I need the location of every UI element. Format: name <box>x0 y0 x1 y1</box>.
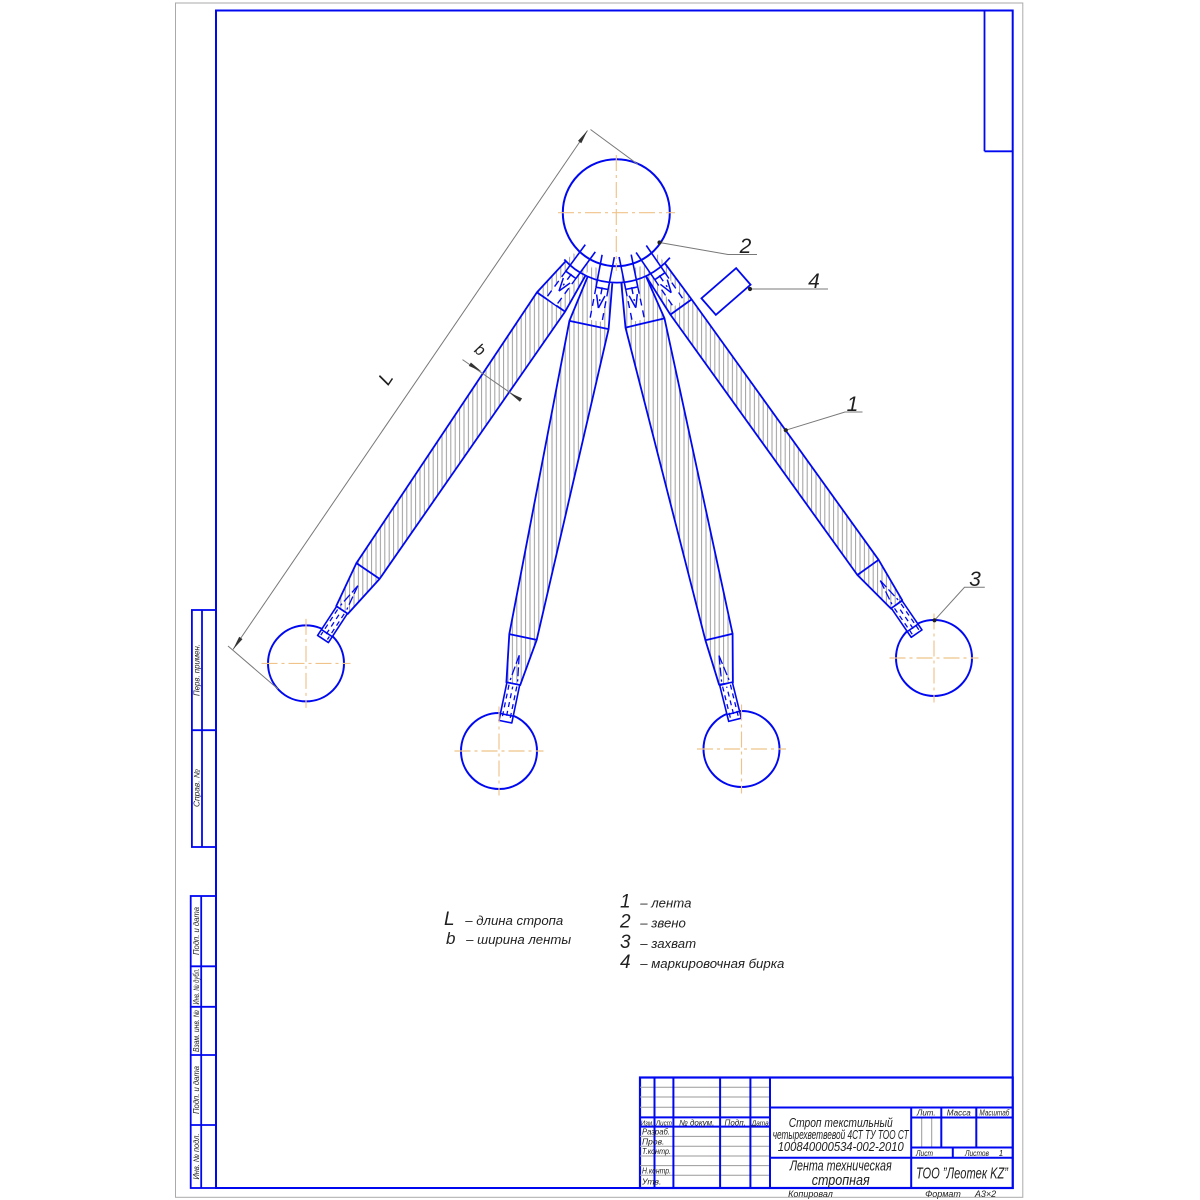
svg-text:Подп.: Подп. <box>725 1118 746 1127</box>
svg-text:стропная: стропная <box>812 1172 870 1189</box>
svg-text:4: 4 <box>808 270 820 293</box>
svg-text:Справ. №: Справ. № <box>193 769 202 807</box>
svg-text:Копировал: Копировал <box>788 1189 833 1199</box>
svg-text:L – длина стропа: L – длина стропа <box>444 909 563 930</box>
svg-text:Подп. и дата: Подп. и дата <box>192 906 201 955</box>
svg-text:Масштаб: Масштаб <box>979 1108 1009 1117</box>
svg-text:1: 1 <box>999 1149 1003 1158</box>
svg-text:Т.контр.: Т.контр. <box>642 1146 671 1156</box>
svg-text:2 – звено: 2 – звено <box>619 912 686 933</box>
svg-text:A3×2: A3×2 <box>974 1189 996 1199</box>
svg-text:№ докум.: № докум. <box>679 1118 714 1127</box>
svg-text:Пров.: Пров. <box>642 1136 664 1146</box>
svg-text:Инв. № дубл.: Инв. № дубл. <box>192 969 201 1005</box>
svg-text:Формат: Формат <box>925 1189 961 1199</box>
svg-text:Подп. и дата: Подп. и дата <box>192 1065 201 1114</box>
svg-text:2: 2 <box>739 235 752 258</box>
svg-text:Утв.: Утв. <box>641 1177 661 1187</box>
svg-text:b – ширина ленты: b – ширина ленты <box>446 929 571 948</box>
svg-text:4 – маркировочная бирка: 4 – маркировочная бирка <box>620 952 784 973</box>
svg-text:Взам. инв. №: Взам. инв. № <box>192 1010 201 1052</box>
svg-text:1: 1 <box>847 393 859 416</box>
svg-text:Масса: Масса <box>947 1108 972 1117</box>
svg-text:Перв. примен.: Перв. примен. <box>193 644 202 696</box>
svg-text:3: 3 <box>969 568 981 591</box>
svg-text:Разраб.: Разраб. <box>642 1127 670 1137</box>
svg-text:Листов: Листов <box>964 1149 989 1158</box>
svg-text:Н.контр.: Н.контр. <box>642 1166 671 1176</box>
svg-text:100840000534-002-2010: 100840000534-002-2010 <box>778 1140 904 1154</box>
svg-text:Лист: Лист <box>915 1149 933 1158</box>
svg-text:Дата: Дата <box>751 1118 769 1127</box>
svg-text:ТОО ”Леотек KZ”: ТОО ”Леотек KZ” <box>916 1166 1009 1183</box>
svg-text:Инв. № подл.: Инв. № подл. <box>192 1134 201 1180</box>
svg-text:Лит.: Лит. <box>916 1108 936 1117</box>
